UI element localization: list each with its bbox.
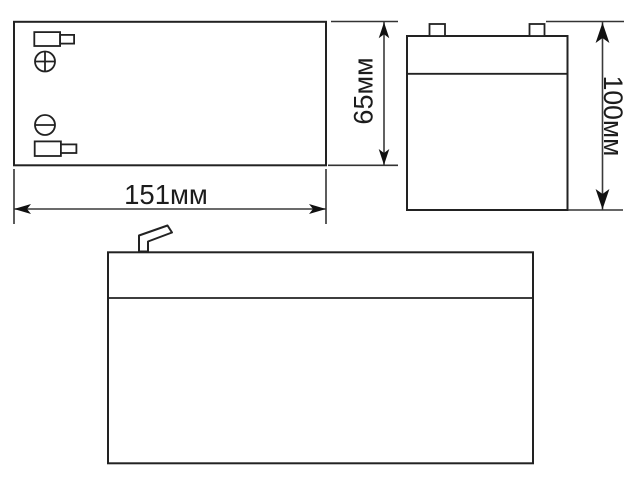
svg-text:65мм: 65мм [349,57,379,124]
svg-text:100мм: 100мм [598,76,628,157]
svg-text:151мм: 151мм [124,179,208,210]
